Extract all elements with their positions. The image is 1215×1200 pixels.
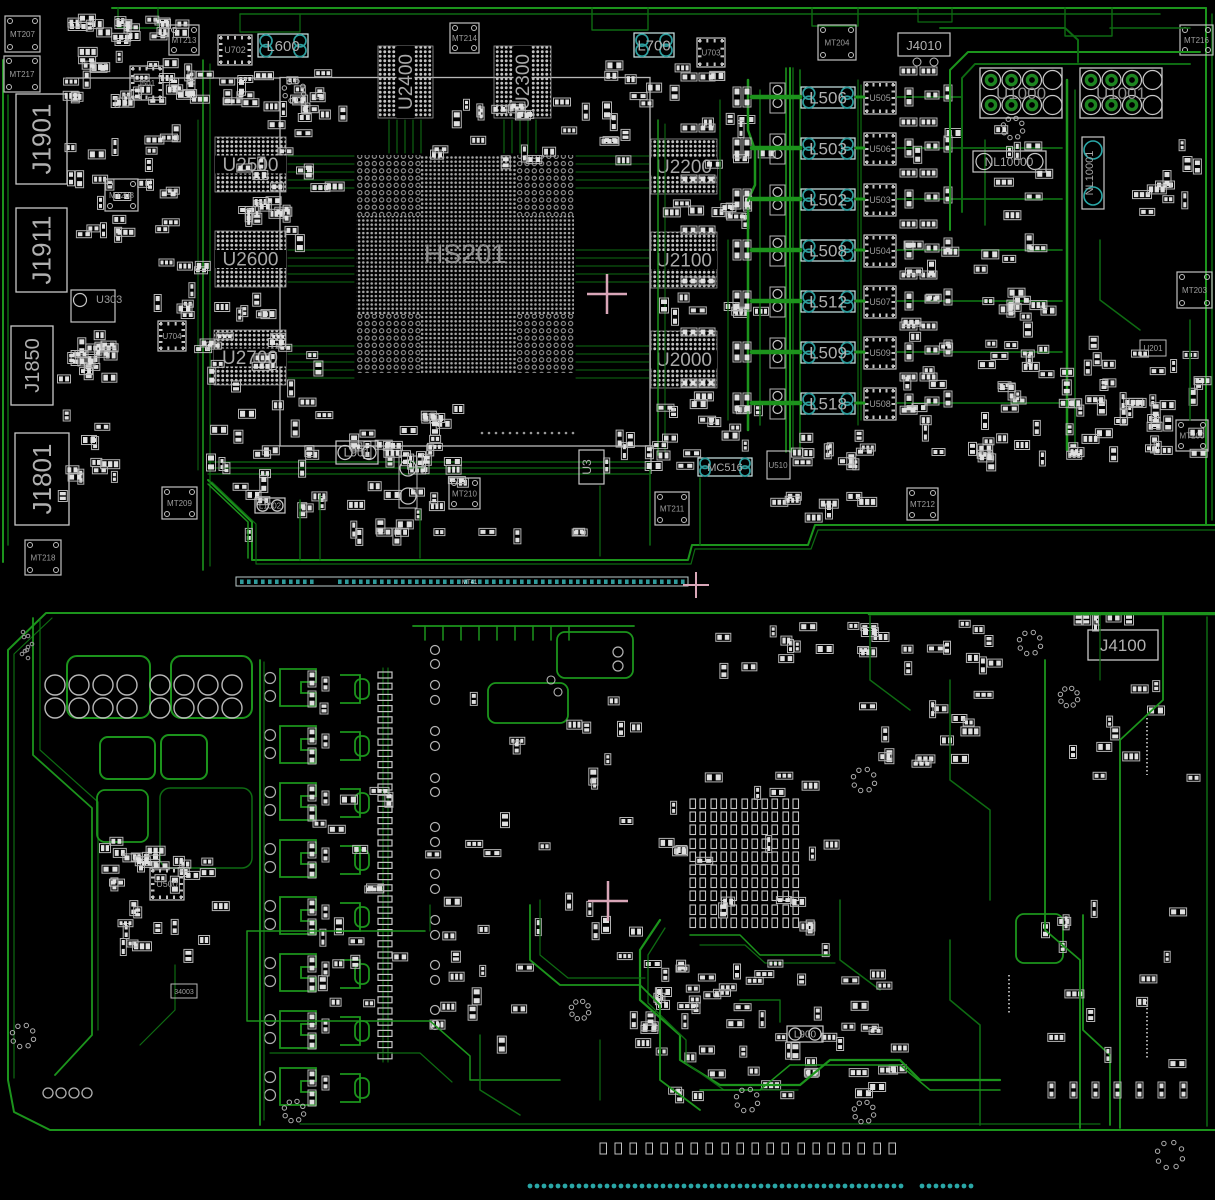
svg-text:U503: U503 <box>869 195 891 205</box>
svg-text:U704: U704 <box>162 332 182 341</box>
svg-text:NL10001: NL10001 <box>1084 151 1096 196</box>
svg-text:U2400: U2400 <box>396 54 417 110</box>
svg-text:L506: L506 <box>809 88 847 107</box>
svg-text:L502: L502 <box>809 190 847 209</box>
svg-text:MC516: MC516 <box>707 462 742 474</box>
svg-text:U2500: U2500 <box>223 155 279 176</box>
svg-text:J501: J501 <box>138 79 156 88</box>
svg-text:J1801: J1801 <box>27 444 57 515</box>
svg-text:MT214: MT214 <box>452 34 477 43</box>
svg-text:34003: 34003 <box>174 989 194 996</box>
svg-text:J1911: J1911 <box>27 216 57 285</box>
svg-text:MT213: MT213 <box>172 36 197 45</box>
svg-text:L503: L503 <box>809 139 847 158</box>
svg-text:L509: L509 <box>809 343 847 362</box>
svg-text:U506: U506 <box>869 144 891 154</box>
svg-text:MT212: MT212 <box>910 500 935 509</box>
svg-text:MT207: MT207 <box>10 30 35 39</box>
svg-text:U2000: U2000 <box>656 350 712 371</box>
svg-text:U1000: U1000 <box>996 84 1046 103</box>
svg-text:L1002: L1002 <box>259 501 282 510</box>
svg-text:J1850: J1850 <box>22 338 44 393</box>
svg-text:L901: L901 <box>344 446 371 460</box>
svg-text:L512: L512 <box>809 292 847 311</box>
svg-text:L508: L508 <box>809 241 847 260</box>
svg-text:U2100: U2100 <box>656 251 712 272</box>
svg-text:U510: U510 <box>768 461 788 470</box>
svg-text:U702: U702 <box>224 45 246 55</box>
svg-text:J4100: J4100 <box>1100 636 1146 655</box>
svg-text:U507: U507 <box>869 297 891 307</box>
svg-text:L600: L600 <box>266 38 299 55</box>
svg-text:J1901: J1901 <box>27 104 57 175</box>
svg-text:L518: L518 <box>809 394 847 413</box>
svg-text:MT41: MT41 <box>462 580 478 586</box>
svg-text:MT208: MT208 <box>109 191 134 200</box>
svg-text:U3: U3 <box>580 459 594 475</box>
svg-text:U505: U505 <box>869 93 891 103</box>
svg-text:MT218: MT218 <box>31 553 56 562</box>
svg-text:MT217: MT217 <box>10 70 35 79</box>
svg-text:MT204: MT204 <box>825 38 850 47</box>
svg-text:U504: U504 <box>869 246 891 256</box>
svg-text:MT210: MT210 <box>452 489 477 498</box>
svg-text:U703: U703 <box>701 48 721 57</box>
svg-text:MT209: MT209 <box>167 499 192 508</box>
svg-text:U1001: U1001 <box>1096 84 1146 103</box>
svg-text:U508: U508 <box>869 399 891 409</box>
svg-text:MT203: MT203 <box>1182 286 1207 295</box>
svg-text:HS201: HS201 <box>424 239 507 269</box>
svg-text:U500: U500 <box>156 879 178 889</box>
svg-text:U303: U303 <box>96 294 122 306</box>
svg-text:MT211: MT211 <box>660 504 685 513</box>
svg-text:L900: L900 <box>794 1030 817 1041</box>
svg-text:J4010: J4010 <box>906 38 941 53</box>
svg-text:U2600: U2600 <box>223 250 279 271</box>
svg-text:MT216: MT216 <box>1184 36 1209 45</box>
svg-text:L700: L700 <box>637 37 670 54</box>
svg-text:U509: U509 <box>869 348 891 358</box>
